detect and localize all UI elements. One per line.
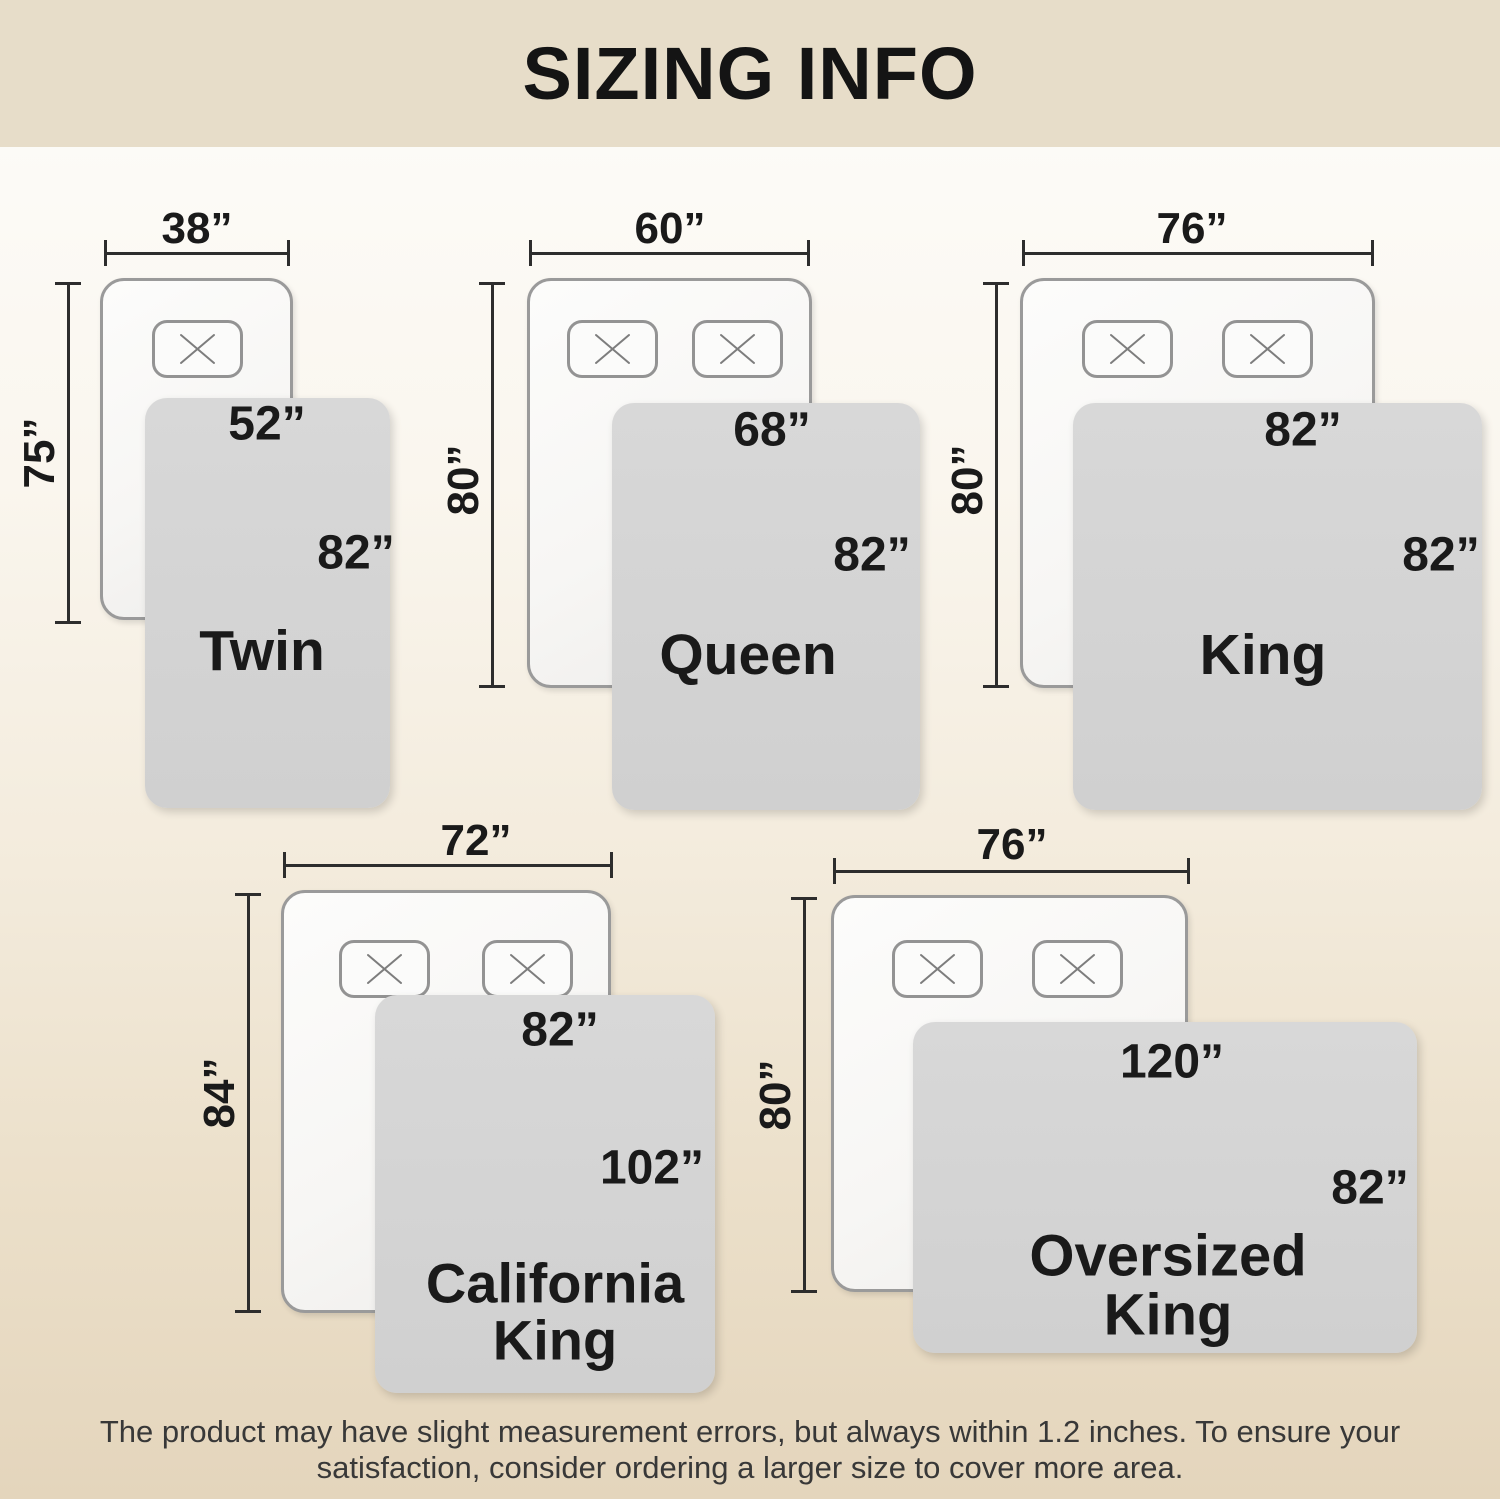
sizing-info-infographic: SIZING INFO 38” 75” 52” 82” Twin 60” 80” [0,0,1500,1499]
blanket-length-label: 82” [1402,528,1479,583]
page-title: SIZING INFO [523,31,978,116]
blanket [612,403,920,810]
footer-note-line1: The product may have slight measurement … [0,1414,1500,1450]
bed-width-label: 76” [1157,204,1228,254]
bed-width-label: 76” [977,820,1048,870]
pillow [1032,940,1123,998]
pillow-x-icon [570,323,655,375]
pillow [1222,320,1313,378]
pillow-x-icon [155,323,240,375]
size-name-label-line1: California [426,1251,684,1316]
bed-length-label: 80” [943,445,993,516]
bed-length-label: 80” [751,1060,801,1131]
pillow-x-icon [342,943,427,995]
bed-width-label: 72” [441,816,512,866]
blanket-length-label: 82” [1331,1161,1408,1216]
pillow-x-icon [1085,323,1170,375]
pillow-x-icon [895,943,980,995]
bed-length-label: 75” [15,418,65,489]
size-name-label: King [1200,622,1327,688]
pillow-x-icon [485,943,570,995]
bed-length-dimension-line [491,282,494,688]
blanket-length-label: 82” [317,526,394,581]
bed-width-dimension-line [833,870,1190,873]
pillow [482,940,573,998]
blanket-width-label: 120” [1120,1035,1224,1090]
bed-width-label: 60” [635,204,706,254]
pillow [339,940,430,998]
blanket-length-label: 82” [833,528,910,583]
bed-length-dimension-line [803,897,806,1293]
pillow-x-icon [1035,943,1120,995]
bed-length-label: 80” [439,445,489,516]
blanket-width-label: 52” [228,397,305,452]
pillow [152,320,243,378]
bed-length-dimension-line [67,282,70,624]
blanket [1073,403,1482,810]
pillow [692,320,783,378]
size-name-label-line2: King [493,1308,617,1373]
pillow [892,940,983,998]
blanket-width-label: 82” [1264,403,1341,458]
blanket-width-label: 68” [733,403,810,458]
size-name-label-line2: King [1104,1282,1233,1349]
bed-length-dimension-line [995,282,998,688]
pillow [567,320,658,378]
bed-length-dimension-line [247,893,250,1313]
bed-length-label: 84” [195,1058,245,1129]
blanket-length-label: 102” [600,1141,704,1196]
size-name-label-line1: Oversized [1029,1223,1306,1290]
pillow-x-icon [695,323,780,375]
pillow-x-icon [1225,323,1310,375]
footer-note-line2: satisfaction, consider ordering a larger… [0,1450,1500,1486]
blanket [145,398,390,808]
pillow [1082,320,1173,378]
bed-width-label: 38” [162,204,233,254]
header-band: SIZING INFO [0,0,1500,147]
size-name-label: Twin [199,618,325,684]
size-name-label: Queen [659,622,836,688]
blanket-width-label: 82” [521,1003,598,1058]
